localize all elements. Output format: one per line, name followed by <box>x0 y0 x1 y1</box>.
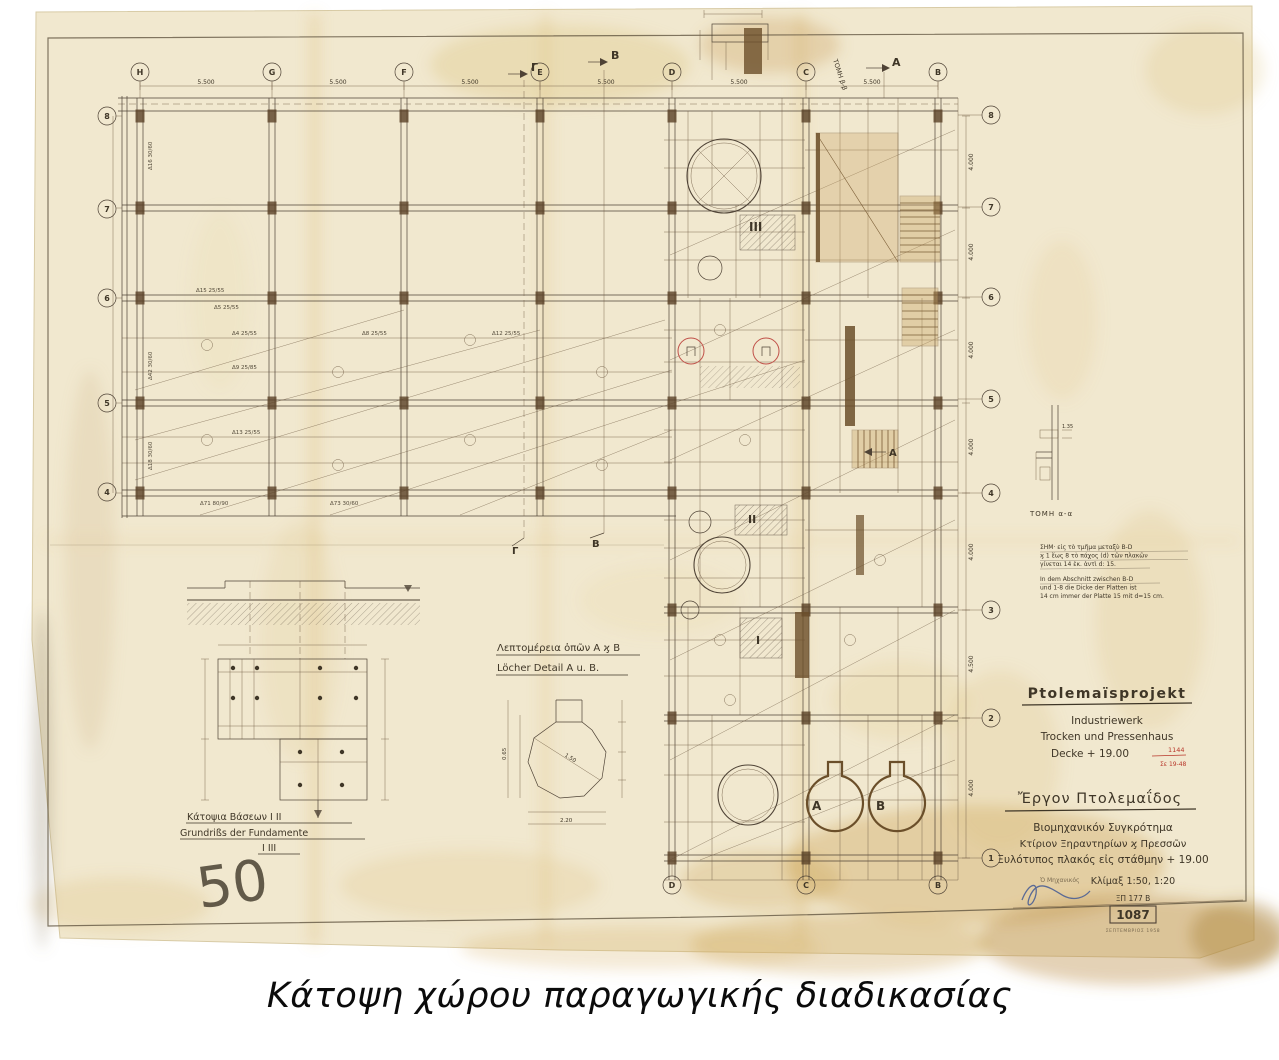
grid-letter: D <box>669 881 676 890</box>
greek-sub2: Κτίριον Ξηραντηρίων ϗ Πρεσσῶν <box>1020 838 1187 850</box>
red-stamp-note: Σε 19-48 <box>1160 761 1187 768</box>
dim-span: 4.000 <box>968 341 975 358</box>
grid-letter: D <box>669 68 676 77</box>
beam-label: Δ42 30/60 <box>148 351 154 380</box>
dim-span: 5.500 <box>329 79 346 86</box>
grid-number: 3 <box>988 606 994 615</box>
beam-label: Δ18 30/60 <box>148 441 154 470</box>
scanned-drawing-page: 5.500 5.500 5.500 5.500 5.500 5.500 4.00… <box>0 0 1279 1060</box>
dim-span: 5.500 <box>597 79 614 86</box>
holes-label-gr: Λεπτομέρεια ὀπῶν Α ϗ Β <box>497 642 620 654</box>
grid-letter: B <box>935 68 941 77</box>
detail-dim: 0.65 <box>502 747 508 760</box>
section-marker-a-top: A <box>892 56 901 69</box>
dim-span: 4.000 <box>968 153 975 170</box>
grid-number: 6 <box>988 293 994 302</box>
note-line: γίνεται 14 ἑκ. ἀντὶ d: 15. <box>1040 561 1116 568</box>
foundation-label-de2: Ι ΙΙΙ <box>262 843 276 854</box>
dim-span: 5.500 <box>197 79 214 86</box>
note-line: ΣΗΜ· εἰς τὸ τμῆμα μεταξὺ B-D <box>1040 544 1133 551</box>
foundation-label-de: Grundrißs der Fundamente <box>180 828 308 839</box>
dim-span: 5.500 <box>863 79 880 86</box>
grid-letter: C <box>803 68 809 77</box>
detail-dim: 1.35 <box>1062 424 1073 430</box>
note-line: und 1-8 die Dicke der Platten ist <box>1040 585 1137 592</box>
hole-b-label: B <box>876 799 885 813</box>
beam-label: Δ4 25/55 <box>232 331 257 337</box>
greek-sub3: Ξυλότυπος πλακός εἰς στάθμην + 19.00 <box>997 854 1208 866</box>
section-marker-a-mid: A <box>889 448 897 459</box>
note-line: In dem Abschnitt zwischen B-D <box>1040 576 1134 583</box>
grid-number: 1 <box>988 854 994 863</box>
beam-label: Δ12 25/55 <box>492 331 521 337</box>
greek-project-title: Ἔργον Πτολεμαΐδος <box>1018 789 1182 807</box>
dim-span: 4.000 <box>968 543 975 560</box>
section-marker-b-top: B <box>611 49 619 62</box>
holes-label-de: Löcher Detail A u. B. <box>497 663 599 674</box>
zone-i-label: I <box>756 634 760 647</box>
grid-number: 2 <box>988 714 994 723</box>
beam-label: Δ9 25/85 <box>232 365 257 371</box>
project-sub1: Industriewerk <box>1071 715 1144 727</box>
beam-label: Δ73 30/60 <box>330 501 359 507</box>
dim-span: 4.500 <box>968 655 975 672</box>
beam-label: Δ15 25/55 <box>196 288 225 294</box>
foundation-label-gr: Κάτοψια Βάσεων Ι ΙΙ <box>187 812 281 823</box>
note-line: 14 cm immer der Platte 15 mit d=15 cm. <box>1040 593 1164 600</box>
grid-number: 7 <box>988 203 994 212</box>
detail-dim: 2.20 <box>560 818 573 824</box>
dim-span: 4.000 <box>968 438 975 455</box>
image-caption: Κάτοψη χώρου παραγωγικής διαδικασίας <box>0 976 1279 1016</box>
stair-treads-2 <box>902 288 938 346</box>
grid-number: 8 <box>104 112 110 121</box>
stair-treads-1 <box>900 196 940 262</box>
scale-label: Κλίμαξ 1:50, 1:20 <box>1091 876 1175 887</box>
beam-label: Δ13 25/55 <box>232 430 261 436</box>
grid-number: 4 <box>104 488 110 497</box>
grid-letter: B <box>935 881 941 890</box>
engineer-label: Ὁ Μηχανικός <box>1040 877 1080 884</box>
project-sub2: Trocken und Pressenhaus <box>1040 731 1174 743</box>
beam-label: Δ71 80/90 <box>200 501 229 507</box>
grid-number: 4 <box>988 489 994 498</box>
grid-number: 8 <box>988 111 994 120</box>
grid-letter: G <box>269 68 276 77</box>
section-marker-b-bottom: B <box>592 539 600 550</box>
project-title: Ptolemaïsprojekt <box>1028 686 1187 702</box>
grid-letter: F <box>401 68 406 77</box>
beam-label: Δ16 30/60 <box>148 141 154 170</box>
dim-span: 4.000 <box>968 779 975 796</box>
section-marker-gamma-bottom: Γ <box>512 546 519 557</box>
pencil-note: 50 <box>193 848 273 922</box>
drawing-sheet: 5.500 5.500 5.500 5.500 5.500 5.500 4.00… <box>0 0 1279 1060</box>
dim-span: 5.500 <box>461 79 478 86</box>
red-stamp-number: 1144 <box>1168 746 1185 754</box>
grid-letter: C <box>803 881 809 890</box>
grid-number: 6 <box>104 294 110 303</box>
section-aa-label: ΤΟΜΗ α-α <box>1029 510 1073 518</box>
drawing-code: ΞΠ 177 Β <box>1116 894 1151 903</box>
beam-label: Δ5 25/55 <box>214 305 239 311</box>
note-line: ϗ 1 ἕως 8 τὸ πάχος (d) τῶν πλακῶν <box>1040 553 1148 560</box>
grid-number: 7 <box>104 205 110 214</box>
grid-number: 5 <box>988 395 994 404</box>
zone-iii-label: III <box>749 220 762 234</box>
greek-sub1: Βιομηχανικόν Συγκρότημα <box>1033 822 1173 834</box>
section-marker-gamma-top: Γ <box>531 61 538 74</box>
drawing-number: 1087 <box>1116 908 1149 922</box>
dim-span: 5.500 <box>730 79 747 86</box>
dim-span: 4.000 <box>968 243 975 260</box>
beam-label: Δ8 25/55 <box>362 331 387 337</box>
zone-ii-label: II <box>748 513 756 526</box>
hole-a-label: A <box>812 799 822 813</box>
grid-letter: H <box>137 68 144 77</box>
grid-number: 5 <box>104 399 110 408</box>
project-sub3: Decke + 19.00 <box>1051 748 1129 760</box>
drawing-date: ΣΕΠΤΕΜΒΡΙΟΣ 1958 <box>1106 928 1161 934</box>
grid-letter: E <box>537 68 542 77</box>
